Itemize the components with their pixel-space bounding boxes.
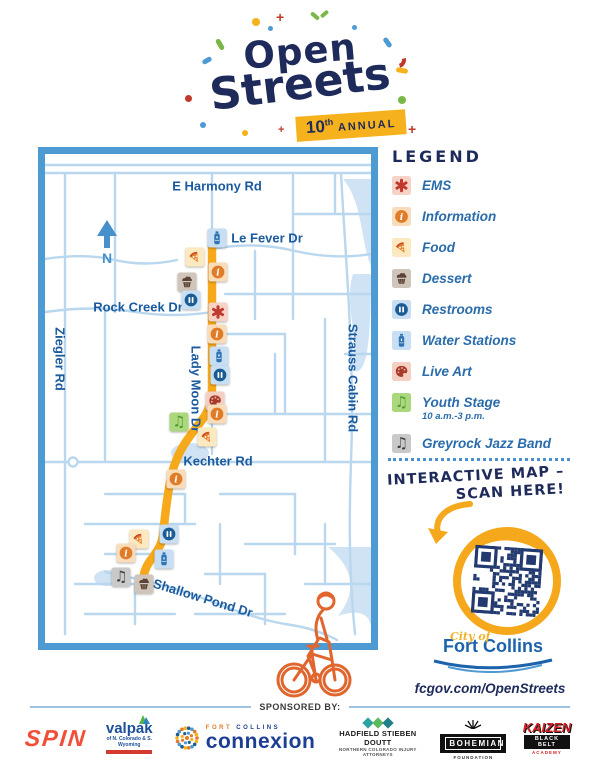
event-route-map: N E Harmony RdLe Fever DrRock Creek DrZi… (38, 147, 378, 650)
map-marker-info: i (208, 405, 227, 424)
sponsor-kaizen: KAIZEN BLACK BELT ACADEMY (519, 721, 575, 755)
event-url: fcgov.com/OpenStreets (400, 681, 580, 696)
legend-label: Information (422, 209, 496, 224)
sponsor-spin: SPIN (24, 725, 89, 752)
live-art-icon (392, 362, 411, 381)
jazz-band-icon: ♫ (392, 434, 411, 453)
event-logo: Open Streets (195, 30, 405, 110)
water-station-icon (392, 331, 411, 350)
annual-badge: 10th ANNUAL (295, 109, 407, 142)
map-marker-info: i (209, 263, 228, 282)
legend-list: EMSiInformationFoodDessertRestroomsWater… (392, 176, 592, 453)
svg-text:i: i (215, 410, 219, 420)
dotted-separator (388, 458, 570, 461)
svg-text:i: i (215, 330, 219, 340)
map-marker-food (198, 428, 217, 447)
street-label-kechter-rd: Kechter Rd (183, 454, 252, 469)
kaizen-academy: ACADEMY (519, 750, 575, 755)
city-logo-swoosh (430, 657, 556, 673)
diamond (382, 717, 393, 728)
map-marker-water (208, 229, 227, 248)
kaizen-name: KAIZEN (519, 721, 575, 734)
map-marker-youth: ♫ (170, 413, 189, 432)
confetti-dash (310, 11, 320, 20)
confetti-dot (185, 95, 192, 102)
map-marker-dessert (178, 273, 197, 292)
map-marker-info: i (167, 470, 186, 489)
bohemian-name: BOHEMIAN (445, 737, 501, 750)
street-label-rock-creek-dr: Rock Creek Dr (93, 300, 183, 315)
legend-label: Youth Stage (422, 395, 500, 410)
legend-item-info: iInformation (392, 207, 592, 226)
legend-label: EMS (422, 178, 451, 193)
street-label-e-harmony-rd: E Harmony Rd (172, 179, 262, 194)
city-logo: City of Fort Collins (428, 636, 558, 678)
legend-title: LEGEND (392, 147, 592, 166)
svg-text:i: i (400, 213, 404, 223)
sponsor-logos: SPIN valpak of N. Colorado & S. Wyoming … (25, 716, 575, 760)
city-logo-cityof: City of (450, 630, 490, 643)
legend-label: Greyrock Jazz Band (422, 436, 551, 451)
cyclist-illustration (274, 588, 358, 702)
bohemian-sub: FOUNDATION (440, 755, 506, 760)
bohemian-fan-icon (464, 719, 482, 729)
legend-item-liveart: Live Art (392, 362, 592, 381)
legend-label: Dessert (422, 271, 472, 286)
legend-sublabel: 10 a.m.-3 p.m. (422, 412, 500, 422)
ems-icon (392, 176, 411, 195)
street-label-le-fever-dr: Le Fever Dr (231, 231, 303, 246)
valpak-mountain-icon (135, 713, 151, 724)
information-icon: i (392, 207, 411, 226)
confetti-plus: + (408, 122, 416, 136)
map-marker-jazz: ♫ (112, 568, 131, 587)
map-marker-restrooms (182, 291, 201, 310)
street-label-strauss-cabin-rd: Strauss Cabin Rd (346, 324, 361, 432)
divider-line (30, 706, 251, 708)
hadfield-diamonds-icon (328, 719, 428, 727)
legend-label: Water Stations (422, 333, 516, 348)
bohemian-box: BOHEMIAN (440, 734, 506, 753)
svg-text:i: i (124, 549, 128, 559)
confetti-dash (320, 10, 329, 19)
confetti-plus: + (276, 10, 284, 24)
divider-line (349, 706, 570, 708)
legend-item-jazz: ♫Greyrock Jazz Band (392, 434, 592, 453)
badge-word: ANNUAL (338, 118, 397, 134)
sponsored-by-divider: SPONSORED BY: (30, 702, 570, 712)
street-label-lady-moon-dr: Lady Moon Dr (189, 346, 204, 433)
confetti-dot (200, 122, 206, 128)
legend: LEGEND EMSiInformationFoodDessertRestroo… (392, 147, 592, 465)
legend-item-restrooms: Restrooms (392, 300, 592, 319)
confetti-plus: + (278, 125, 284, 136)
sponsored-by-label: SPONSORED BY: (259, 702, 340, 712)
valpak-bar (106, 750, 152, 754)
badge-suffix: th (324, 117, 333, 128)
qr-code (471, 545, 544, 618)
sponsor-valpak: valpak of N. Colorado & S. Wyoming (99, 722, 159, 754)
legend-item-food: Food (392, 238, 592, 257)
map-marker-restrooms (160, 525, 179, 544)
map-marker-water (210, 347, 229, 366)
map-marker-water (155, 550, 174, 569)
map-marker-info: i (117, 544, 136, 563)
map-marker-food (186, 248, 205, 267)
badge-number: 10 (305, 117, 325, 137)
svg-text:N: N (102, 250, 112, 266)
connexion-dots-icon (172, 723, 202, 753)
connexion-name: connexion (206, 732, 316, 752)
map-marker-dessert (135, 575, 154, 594)
confetti-dot (252, 18, 260, 26)
map-marker-info: i (208, 325, 227, 344)
youth-stage-icon: ♫ (392, 393, 411, 412)
restrooms-icon (392, 300, 411, 319)
sponsor-bohemian: BOHEMIAN FOUNDATION (440, 716, 506, 760)
valpak-name: valpak (99, 722, 159, 736)
legend-item-dessert: Dessert (392, 269, 592, 288)
sponsor-connexion: FORT COLLINS connexion (172, 723, 316, 753)
legend-label: Food (422, 240, 455, 255)
food-icon (392, 238, 411, 257)
legend-item-water: Water Stations (392, 331, 592, 350)
legend-label: Restrooms (422, 302, 493, 317)
hadfield-sub: NORTHERN COLORADO INJURY ATTORNEYS (328, 747, 428, 757)
north-arrow-icon: N (94, 220, 120, 266)
legend-item-youth: ♫Youth Stage10 a.m.-3 p.m. (392, 393, 592, 422)
open-streets-flyer: + + + Open Streets 10th ANNUAL (0, 0, 600, 777)
svg-text:i: i (174, 475, 178, 485)
dessert-icon (392, 269, 411, 288)
confetti-dot (242, 130, 248, 136)
hadfield-name: HADFIELD STIEBEN DOUTT (328, 729, 428, 747)
map-marker-restrooms (211, 366, 230, 385)
valpak-sub: of N. Colorado & S. Wyoming (99, 736, 159, 748)
svg-text:i: i (216, 268, 220, 278)
kaizen-blackbelt: BLACK BELT (524, 735, 570, 749)
map-marker-ems (209, 303, 228, 322)
street-label-ziegler-rd: Ziegler Rd (53, 327, 68, 391)
sponsor-hadfield: HADFIELD STIEBEN DOUTT NORTHERN COLORADO… (328, 719, 428, 757)
legend-item-ems: EMS (392, 176, 592, 195)
legend-label: Live Art (422, 364, 472, 379)
